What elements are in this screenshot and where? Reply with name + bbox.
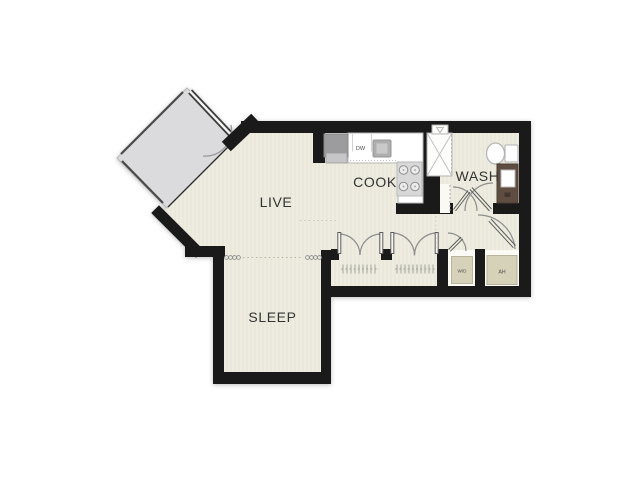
- wash-entry-jamb: [440, 184, 450, 213]
- wall-wd-left: [437, 249, 448, 287]
- wall-kitchen-stub: [313, 121, 325, 163]
- vanity-faucet: [505, 193, 511, 198]
- closet2-left-leaf: [391, 233, 394, 254]
- sleep-label: SLEEP: [248, 309, 296, 325]
- refrigerator-door: [326, 153, 347, 163]
- closet1-right-leaf: [380, 233, 383, 254]
- toilet-tank: [505, 145, 518, 162]
- floor-plan-canvas: DW W/D AH: [0, 0, 640, 480]
- vanity-sink: [501, 170, 515, 187]
- wall-sleep-right: [321, 250, 331, 384]
- floor-plan: DW W/D AH: [0, 0, 640, 480]
- cook-label: COOK: [353, 174, 397, 190]
- wash-label: WASH: [456, 168, 500, 184]
- live-label: LIVE: [260, 194, 293, 210]
- plan-group: DW W/D AH: [117, 88, 531, 384]
- closet1-left-leaf: [338, 233, 341, 254]
- kitchen-sink-basin: [377, 144, 388, 154]
- dishwasher-label: DW: [356, 146, 366, 152]
- toilet-bowl: [487, 143, 505, 164]
- wall-top: [241, 121, 531, 133]
- washer-dryer-label: W/D: [458, 269, 468, 274]
- air-handler-label: AH: [498, 270, 505, 276]
- wall-wash-south: [493, 203, 531, 214]
- wall-sleep-left: [213, 246, 224, 384]
- wall-bottom-right: [321, 286, 531, 297]
- wall-wd-ah-divider: [475, 249, 485, 287]
- wall-sleep-bottom: [213, 372, 331, 384]
